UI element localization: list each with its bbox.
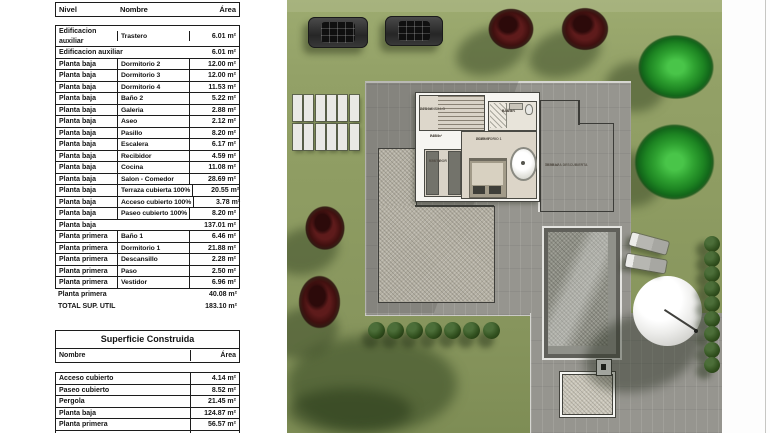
table-row: Planta bajaBaño 25.22 m² bbox=[56, 92, 239, 104]
bush bbox=[704, 251, 720, 267]
table-row: Edificacion auxiliarTrastero6.01 m² bbox=[56, 26, 239, 46]
green-tree bbox=[630, 28, 722, 106]
dome-pole-tip bbox=[694, 329, 698, 333]
pergola-slat bbox=[338, 95, 347, 121]
col-header-area: Área bbox=[190, 4, 239, 15]
pool-water bbox=[548, 232, 608, 346]
table-row: Trastero9.17 m² bbox=[56, 430, 239, 433]
table-row: Planta bajaEscalera6.17 m² bbox=[56, 138, 239, 150]
util-table-footer: Planta primera40.08 m²TOTAL SUP. UTIL183… bbox=[55, 289, 240, 312]
util-table-body: Edificacion auxiliarTrastero6.01 m²Edifi… bbox=[55, 25, 240, 289]
car-windows bbox=[398, 21, 430, 41]
bush bbox=[406, 322, 423, 339]
stairs-room bbox=[419, 95, 485, 131]
pergola-slat bbox=[338, 124, 347, 150]
mosaic-terrace-block bbox=[378, 206, 495, 303]
terraza-outline-left bbox=[540, 100, 579, 212]
bush bbox=[704, 357, 720, 373]
wardrobe bbox=[448, 151, 461, 195]
dormitorio1-area: 21.88 m² bbox=[476, 137, 490, 141]
table-row: Planta bajaDormitorio 411.53 m² bbox=[56, 81, 239, 93]
pergola bbox=[293, 95, 359, 151]
pergola-slat bbox=[350, 124, 359, 150]
table-row: Planta bajaPasillo8.20 m² bbox=[56, 127, 239, 139]
vestidor-room bbox=[424, 149, 463, 197]
bano1-area: 6.46 m² bbox=[502, 109, 514, 113]
util-table-header: Nivel Nombre Área bbox=[55, 2, 240, 17]
bathroom-1 bbox=[488, 101, 537, 131]
sun-lounger bbox=[625, 254, 667, 274]
pergola-slat bbox=[293, 95, 302, 121]
bed bbox=[469, 158, 507, 198]
pergola-slat bbox=[304, 124, 313, 150]
paso-area: 2.50 m² bbox=[430, 134, 442, 138]
bush bbox=[444, 322, 461, 339]
descansillo-area: 2.28 m² bbox=[420, 107, 432, 111]
table-row: Planta bajaAcceso cubierto 100%3.78 m² bbox=[56, 196, 239, 208]
table-row: Planta bajaTerraza cubierta 100%20.55 m² bbox=[56, 184, 239, 196]
vestidor-area: 6.96 m² bbox=[429, 159, 441, 163]
table-row: Acceso cubierto4.14 m² bbox=[56, 373, 239, 384]
pergola-slat bbox=[293, 124, 302, 150]
table-row: Planta primeraPaso2.50 m² bbox=[56, 265, 239, 277]
pergola-slat bbox=[316, 95, 325, 121]
construida-table-body: Acceso cubierto4.14 m²Paseo cubierto8.52… bbox=[55, 372, 240, 433]
table-row: Planta bajaCocina11.08 m² bbox=[56, 161, 239, 173]
toilet bbox=[525, 104, 533, 115]
car bbox=[385, 16, 443, 46]
table-row: Edificacion auxiliar6.01 m² bbox=[56, 46, 239, 58]
col-header-area: Área bbox=[190, 350, 239, 361]
construida-title: Superficie Construida bbox=[56, 331, 239, 349]
stairs-landing bbox=[420, 96, 438, 130]
grass-shade-patch bbox=[287, 388, 412, 433]
table-total-row: Planta primera40.08 m² bbox=[55, 289, 240, 301]
bush bbox=[704, 326, 720, 342]
bush bbox=[387, 322, 404, 339]
construida-table-header: Superficie Construida Nombre Área bbox=[55, 330, 240, 363]
pergola-slat bbox=[316, 124, 325, 150]
pergola-slat bbox=[304, 95, 313, 121]
pergola-slat bbox=[327, 95, 336, 121]
sun-lounger bbox=[629, 232, 669, 254]
col-header-nombre: Nombre bbox=[56, 350, 190, 361]
pergola-slat bbox=[350, 95, 359, 121]
terraza-area: 35.00 m² bbox=[545, 163, 559, 167]
table-row: Planta primeraDormitorio 121.88 m² bbox=[56, 242, 239, 254]
table-row: Planta bajaGaleria2.88 m² bbox=[56, 104, 239, 116]
red-tree bbox=[291, 266, 348, 338]
table-row: Pergola21.45 m² bbox=[56, 395, 239, 407]
green-tree bbox=[626, 116, 722, 208]
floor-plan: DESCANSILLO 2.28 m² PASO 2.50 m² BAÑO 1 … bbox=[415, 92, 540, 202]
table-row: Planta primera56.57 m² bbox=[56, 418, 239, 430]
util-area-table: Nivel Nombre Área Edificacion auxiliarTr… bbox=[55, 2, 240, 312]
shower bbox=[490, 103, 507, 128]
table-row: Planta baja137.01 m² bbox=[56, 219, 239, 231]
bush bbox=[368, 322, 385, 339]
page: Nivel Nombre Área Edificacion auxiliarTr… bbox=[0, 0, 770, 433]
mosaic-terrace-strip bbox=[378, 148, 417, 209]
table-row: Planta bajaDormitorio 312.00 m² bbox=[56, 69, 239, 81]
red-tree bbox=[553, 0, 617, 58]
page-edge-line bbox=[765, 0, 766, 433]
bathtub bbox=[510, 147, 537, 181]
bush bbox=[425, 322, 442, 339]
bush bbox=[704, 281, 720, 297]
table-row: Planta primeraVestidor6.96 m² bbox=[56, 276, 239, 288]
col-header-nivel: Nivel bbox=[56, 4, 117, 15]
bush bbox=[704, 296, 720, 312]
table-row: Planta primeraDescansillo2.28 m² bbox=[56, 253, 239, 265]
red-tree bbox=[298, 198, 352, 258]
table-row: Planta bajaDormitorio 212.00 m² bbox=[56, 58, 239, 70]
table-total-row: TOTAL SUP. UTIL183.10 m² bbox=[55, 300, 240, 312]
bush bbox=[704, 266, 720, 282]
mattress bbox=[472, 163, 503, 185]
bush bbox=[704, 311, 720, 327]
bush bbox=[463, 322, 480, 339]
construida-table: Superficie Construida Nombre Área Acceso… bbox=[55, 330, 240, 433]
col-header-nombre: Nombre bbox=[117, 4, 190, 15]
mosaic-terrace-edge bbox=[415, 205, 494, 207]
wardrobe bbox=[426, 151, 439, 195]
bathtub-drain bbox=[521, 161, 525, 165]
terraza-outline-step bbox=[578, 100, 580, 125]
table-row: Planta baja124.87 m² bbox=[56, 407, 239, 419]
page-edge-strip bbox=[722, 0, 770, 433]
terraza-outline-right bbox=[578, 123, 614, 212]
site-plan: TERRAZA DESCUBIERTA 35.00 m² bbox=[287, 0, 722, 433]
pergola-slat bbox=[327, 124, 336, 150]
table-row: Planta primeraBaño 16.46 m² bbox=[56, 230, 239, 242]
table-row: Planta bajaPaseo cubierto 100%8.20 m² bbox=[56, 207, 239, 219]
table-row: Planta bajaSalon - Comedor28.69 m² bbox=[56, 173, 239, 185]
bush bbox=[483, 322, 500, 339]
table-row: Paseo cubierto8.52 m² bbox=[56, 384, 239, 396]
bush bbox=[704, 342, 720, 358]
table-row: Planta bajaRecibidor4.59 m² bbox=[56, 150, 239, 162]
car bbox=[308, 17, 368, 48]
red-tree bbox=[480, 1, 542, 57]
car-windows bbox=[321, 22, 355, 43]
table-row: Planta bajaAseo2.12 m² bbox=[56, 115, 239, 127]
pillow bbox=[489, 186, 501, 194]
bush bbox=[704, 236, 720, 252]
pillow bbox=[473, 186, 485, 194]
